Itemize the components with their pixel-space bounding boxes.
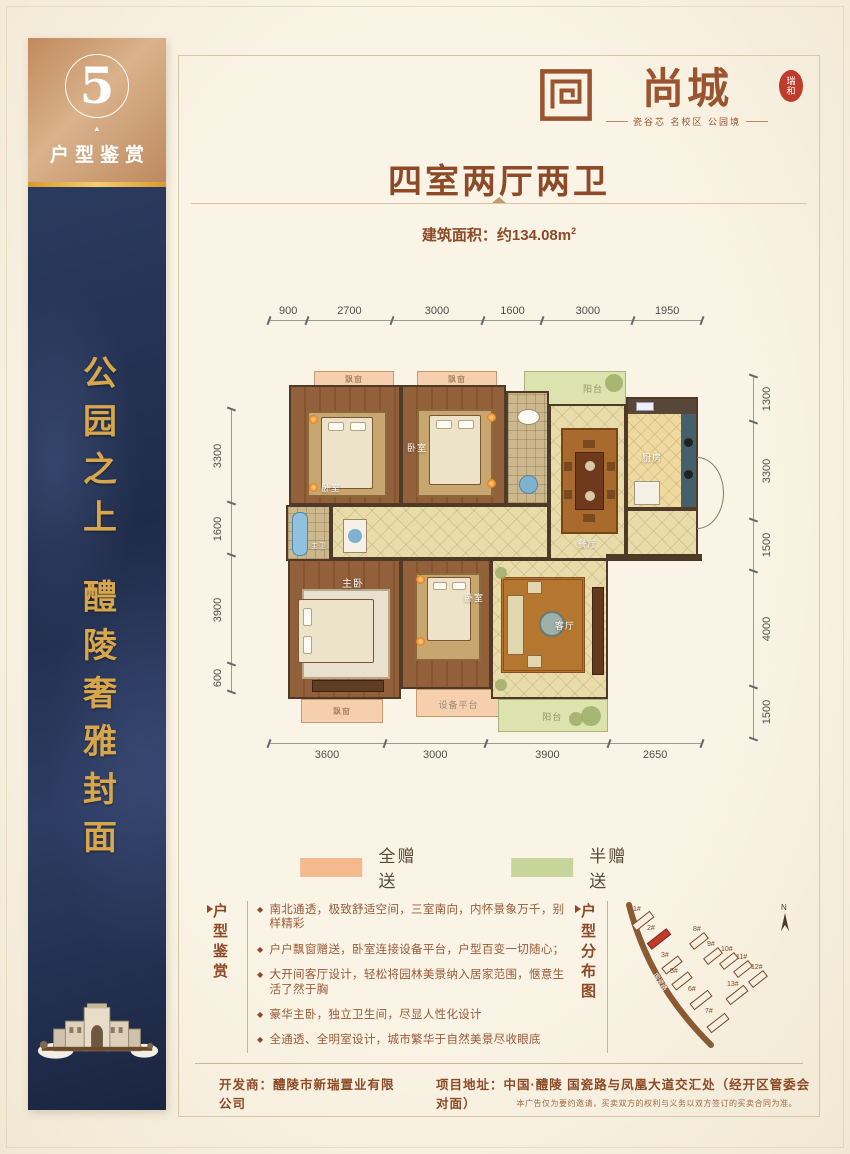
- floor-plan: 飘窗 飘窗 阳台: [284, 371, 724, 731]
- feature-item: ◆豪华主卧，独立卫生间，尽显人性化设计: [257, 1008, 569, 1022]
- room-kitchen: 厨房: [626, 397, 698, 509]
- legend-swatch-full: [301, 858, 363, 877]
- building-label: 2#: [647, 925, 655, 932]
- title-divider: [191, 203, 807, 204]
- feature-item: ◆南北通透，极致舒适空间，三室南向，内怀景象万千，别样精彩: [257, 903, 569, 932]
- disclaimer-text: 本广告仅为要约邀请，买卖双方的权利与义务以双方签订的买卖合同为准。: [517, 1098, 798, 1109]
- logo-name: 尚城: [601, 66, 773, 112]
- unit-number-badge: 5: [65, 54, 129, 118]
- features-section: 户型鉴赏 ◆南北通透，极致舒适空间，三室南向，内怀景象万千，别样精彩 ◆户户飘窗…: [209, 899, 569, 1059]
- developer-text: 开发商：醴陵市新瑞置业有限公司: [219, 1074, 406, 1112]
- dim-segment: 1600: [212, 517, 224, 541]
- feature-item: ◆大开间客厅设计，轻松将园林美景纳入居家范围，惬意生活了然于胸: [257, 968, 569, 997]
- building: [704, 948, 722, 965]
- dim-segment: 900: [269, 305, 307, 320]
- sidebar-banner: 公园之上 醴陵奢雅封面: [28, 187, 166, 1110]
- dim-segment: 600: [212, 668, 224, 686]
- dim-segment: 2700: [307, 305, 391, 320]
- dim-segment: 1600: [483, 305, 543, 320]
- logo-seal-icon: [539, 68, 593, 122]
- building-illustration: [28, 986, 166, 1082]
- building: [726, 985, 748, 1004]
- building-label: 1#: [633, 906, 641, 913]
- svg-text:N: N: [781, 903, 787, 912]
- dim-segment: 1300: [761, 387, 773, 411]
- diamond-bullet-icon: ◆: [257, 1035, 263, 1045]
- fridge-icon: [634, 481, 660, 505]
- area-text: 建筑面积：约134.08m2: [179, 224, 819, 245]
- ornament-icon: ▲: [93, 124, 101, 133]
- brand-logo: 尚城 瓷谷芯 名校区 公园境 瑞和: [539, 66, 803, 128]
- sink-icon: [519, 475, 538, 494]
- kitchen-counter: [681, 414, 696, 507]
- bathtub-icon: [292, 512, 308, 556]
- building: [690, 933, 708, 950]
- footer-divider: [195, 1063, 803, 1064]
- building-label: 10#: [721, 946, 733, 953]
- feature-item: ◆全通透、全明室设计，城市繁华于自然美景尽收眼底: [257, 1033, 569, 1047]
- compass-icon: N: [781, 903, 789, 931]
- kitchen-counter: [628, 399, 696, 414]
- dimension-row-top: 900 2700 3000 1600 3000 1950: [269, 298, 701, 321]
- entry-hall: [626, 509, 698, 559]
- dim-segment: 4000: [761, 617, 773, 641]
- features-side-label: 户型鉴赏: [209, 903, 230, 983]
- logo-tagline: 瓷谷芯 名校区 公园境: [601, 115, 773, 128]
- legend: 全赠送 半赠送: [301, 842, 647, 892]
- building: [734, 961, 752, 978]
- plant-icon: [581, 706, 601, 726]
- bay-window: 飘窗: [301, 699, 383, 723]
- plant-icon: [569, 712, 583, 726]
- dim-segment: 3300: [212, 444, 224, 468]
- room-bedroom-3: 卧室: [401, 559, 491, 689]
- dim-segment: 3000: [392, 305, 483, 320]
- room-bedroom-1: 卧室: [289, 385, 401, 505]
- dim-segment: 3900: [486, 744, 610, 761]
- building-label: 9#: [707, 941, 715, 948]
- bed: [298, 599, 374, 663]
- lamp-icon: [309, 483, 318, 492]
- lamp-icon: [487, 413, 496, 422]
- distribution-side-label: 户型分布图: [577, 903, 598, 1003]
- vertical-divider: [607, 901, 608, 1053]
- room-master-bedroom: 主卧: [288, 559, 401, 699]
- floor-plan-area: 900 2700 3000 1600 3000 1950 3300 1600 3…: [203, 288, 797, 793]
- sidebar-number-block: 5 ▲ 户型鉴赏: [28, 38, 166, 182]
- lamp-icon: [487, 479, 496, 488]
- bed: [321, 417, 373, 489]
- site-map: 国瓷路 N 1# 2# 3# 5# 6# 7# 8#: [615, 899, 805, 1051]
- dimension-col-left: 3300 1600 3900 600: [205, 409, 232, 691]
- vertical-divider: [247, 901, 248, 1053]
- plant-icon: [495, 567, 507, 579]
- dim-segment: 2650: [609, 744, 701, 761]
- dining-table: [575, 452, 604, 510]
- lamp-icon: [416, 637, 425, 646]
- tv-cabinet: [592, 587, 604, 675]
- dimension-col-right: 1300 3300 1500 4000 1500: [753, 376, 780, 738]
- slogan-top: 公园之上: [73, 355, 122, 547]
- bed: [429, 415, 481, 485]
- diamond-bullet-icon: ◆: [257, 945, 263, 955]
- room-dining: 餐厅: [549, 404, 626, 560]
- building-label: 8#: [693, 926, 701, 933]
- plant-icon: [605, 374, 623, 392]
- room-bedroom-2: 卧室: [401, 385, 506, 505]
- bed: [427, 577, 471, 641]
- equipment-platform: 设备平台: [416, 689, 501, 717]
- dim-segment: 1500: [761, 700, 773, 724]
- sidebar: 5 ▲ 户型鉴赏 公园之上 醴陵奢雅封面: [28, 38, 166, 1110]
- toilet-icon: [517, 409, 540, 425]
- dim-segment: 3300: [761, 459, 773, 483]
- slogan-bottom: 醴陵奢雅封面: [73, 579, 122, 867]
- diamond-bullet-icon: ◆: [257, 970, 263, 980]
- washbasin-icon: [343, 519, 367, 553]
- dim-segment: 3900: [212, 597, 224, 621]
- room-master-bath: 主卫: [286, 505, 331, 561]
- building-label: 6#: [688, 986, 696, 993]
- diamond-bullet-icon: ◆: [257, 1010, 263, 1020]
- balcony-bottom: 阳台: [498, 699, 608, 732]
- entry-door-arc: [697, 457, 724, 529]
- legend-item-full: 全赠送: [301, 842, 436, 892]
- building: [707, 1013, 729, 1032]
- dim-segment: 3000: [542, 305, 633, 320]
- armchair: [527, 655, 542, 668]
- wardrobe: [312, 680, 384, 692]
- wall: [606, 554, 702, 561]
- building-label: 3#: [661, 952, 669, 959]
- dim-segment: 3600: [269, 744, 385, 761]
- diamond-bullet-icon: ◆: [257, 905, 263, 915]
- poster-page: 尚城 瓷谷芯 名校区 公园境 瑞和 四室两厅两卫 建筑面积：约134.08m2 …: [0, 0, 850, 1154]
- corridor: [331, 505, 549, 559]
- dim-segment: 3000: [385, 744, 486, 761]
- building: [690, 990, 712, 1009]
- page-title: 四室两厅两卫: [179, 154, 819, 203]
- building-label: 12#: [751, 964, 763, 971]
- room-living: 客厅: [491, 559, 608, 699]
- dim-segment: 1950: [633, 305, 701, 320]
- sofa: [507, 595, 524, 655]
- legend-item-half: 半赠送: [511, 842, 646, 892]
- building-label: 5#: [670, 968, 678, 975]
- lamp-icon: [309, 415, 318, 424]
- divider-triangle-icon: [492, 197, 506, 203]
- feature-item: ◆户户飘窗赠送，卧室连接设备平台，户型百变一切随心；: [257, 943, 569, 957]
- building-label: 13#: [727, 981, 739, 988]
- legend-swatch-half: [511, 858, 573, 877]
- dim-segment: 1500: [761, 533, 773, 557]
- plant-icon: [495, 679, 507, 691]
- building: [749, 971, 767, 988]
- logo-red-seal: 瑞和: [779, 70, 803, 102]
- distribution-section: 户型分布图 国瓷路 N 1# 2# 3# 5# 6# 7: [577, 899, 803, 1059]
- armchair: [527, 581, 542, 594]
- building-label: 7#: [705, 1008, 713, 1015]
- building-label: 11#: [736, 954, 747, 961]
- room-bathroom: [506, 391, 549, 505]
- main-card: 尚城 瓷谷芯 名校区 公园境 瑞和 四室两厅两卫 建筑面积：约134.08m2 …: [178, 55, 820, 1117]
- dimension-row-bottom: 3600 3000 3900 2650: [269, 743, 701, 768]
- lamp-icon: [416, 575, 425, 584]
- sidebar-tab-label: 户型鉴赏: [28, 140, 166, 167]
